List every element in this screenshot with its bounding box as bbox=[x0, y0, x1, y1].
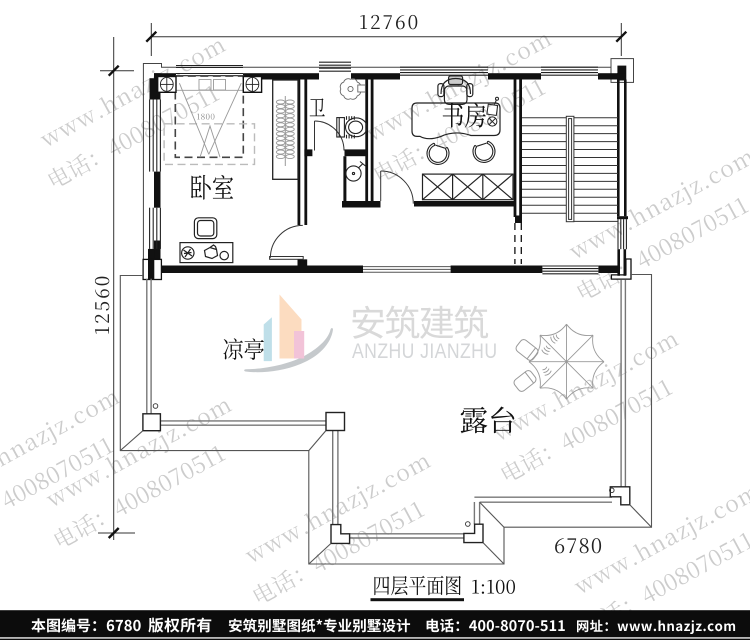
svg-text:ANZHU JIANZHU: ANZHU JIANZHU bbox=[352, 340, 497, 364]
